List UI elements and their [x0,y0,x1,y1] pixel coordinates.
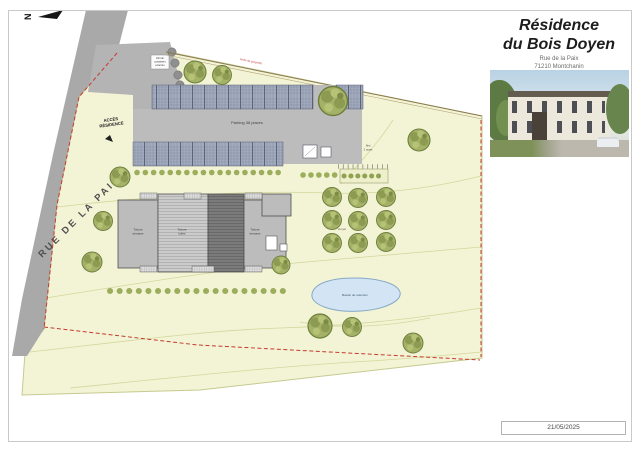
residence-title: Résidence du Bois Doyen [486,16,632,54]
date-box: 21/05/2025 [501,421,626,435]
residence-photo [490,70,629,157]
title-line: du Bois Doyen [486,35,632,54]
photo-car [597,139,619,147]
residence-address: Rue de la Paix 71210 Montchanin [486,55,632,71]
photo-building [508,91,609,142]
title-line: Résidence [486,16,632,35]
plan-page: RUE DE LA PAIX Abri de containers enterr… [0,0,640,453]
plan-date: 21/05/2025 [547,424,580,431]
photo-tree-right [606,84,629,134]
address-line: Rue de la Paix [486,55,632,63]
